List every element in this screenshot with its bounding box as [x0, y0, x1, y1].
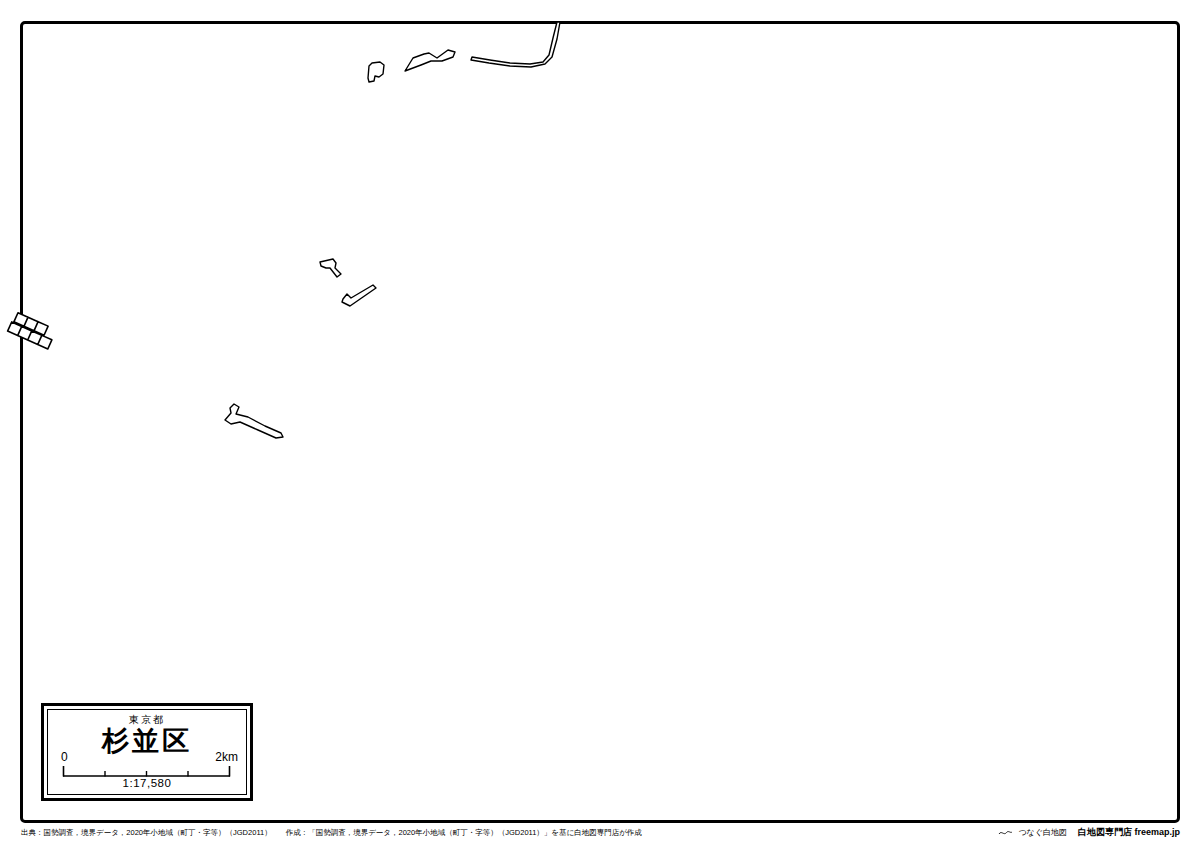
map-legend-card: 東京都 杉並区 0 2km 1:17,580	[41, 703, 253, 801]
scale-ratio-label: 1:17,580	[44, 777, 250, 789]
map-shape-blob	[368, 62, 384, 82]
brand-tagline: つなぐ白地図	[1018, 827, 1067, 838]
scale-bar	[62, 764, 232, 778]
blank-map-page: 東京都 杉並区 0 2km 1:17,580 出典：国勢調査，境界データ，202…	[0, 0, 1200, 848]
map-shape-river-ribbon	[471, 22, 560, 67]
map-shape-zigzag	[320, 259, 341, 277]
source-text: 出典：国勢調査，境界データ，2020年小地域（町丁・字等）（JGD2011）	[21, 828, 272, 838]
scale-end-label: 2km	[215, 750, 238, 764]
brand-area: つなぐ白地図 白地図専門店 freemap.jp	[998, 826, 1180, 839]
route-squiggle-icon	[998, 829, 1013, 837]
created-text: 作成：「国勢調査，境界データ，2020年小地域（町丁・字等）（JGD2011）」…	[286, 828, 642, 838]
brand-name: 白地図専門店 freemap.jp	[1078, 826, 1180, 839]
map-shape-checkmark	[342, 285, 376, 306]
map-shape-block-grid	[8, 312, 57, 349]
map-shape-branch	[225, 404, 283, 438]
map-shape-wave	[405, 50, 455, 71]
scale-start-label: 0	[61, 750, 68, 764]
attribution-line: 出典：国勢調査，境界データ，2020年小地域（町丁・字等）（JGD2011） 作…	[21, 828, 642, 838]
